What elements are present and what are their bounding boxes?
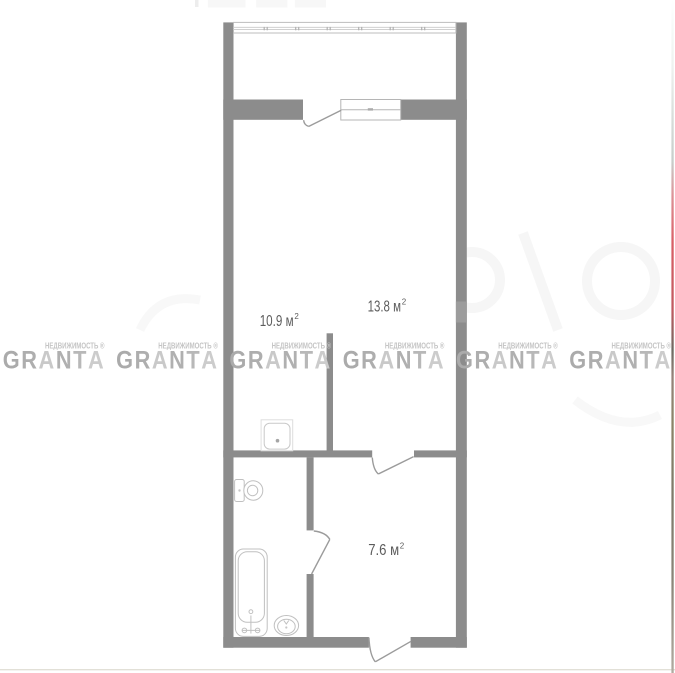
svg-text:2: 2 <box>402 298 407 307</box>
svg-text:2: 2 <box>294 312 299 321</box>
svg-text:13.8 м: 13.8 м <box>368 298 401 315</box>
svg-text:10.9 м: 10.9 м <box>260 313 294 330</box>
svg-text:GRANTA: GRANTA <box>3 346 105 374</box>
svg-text:2: 2 <box>400 541 405 550</box>
svg-text:7.6 м: 7.6 м <box>368 542 399 559</box>
